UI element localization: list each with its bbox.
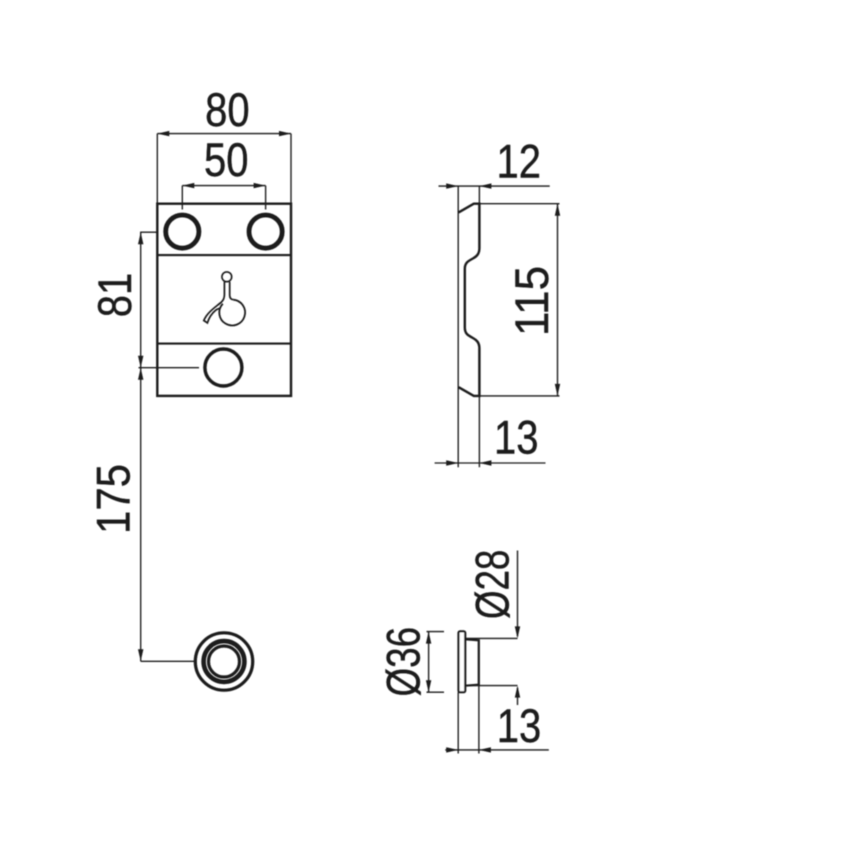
svg-text:Ø36: Ø36 xyxy=(377,627,430,697)
svg-text:13: 13 xyxy=(497,699,542,752)
svg-text:50: 50 xyxy=(204,133,249,186)
svg-text:80: 80 xyxy=(205,83,250,136)
svg-text:13: 13 xyxy=(494,411,539,464)
svg-text:Ø28: Ø28 xyxy=(466,550,519,620)
svg-text:12: 12 xyxy=(497,135,542,188)
svg-text:81: 81 xyxy=(88,273,141,318)
svg-text:115: 115 xyxy=(505,266,558,336)
svg-text:175: 175 xyxy=(87,464,140,534)
